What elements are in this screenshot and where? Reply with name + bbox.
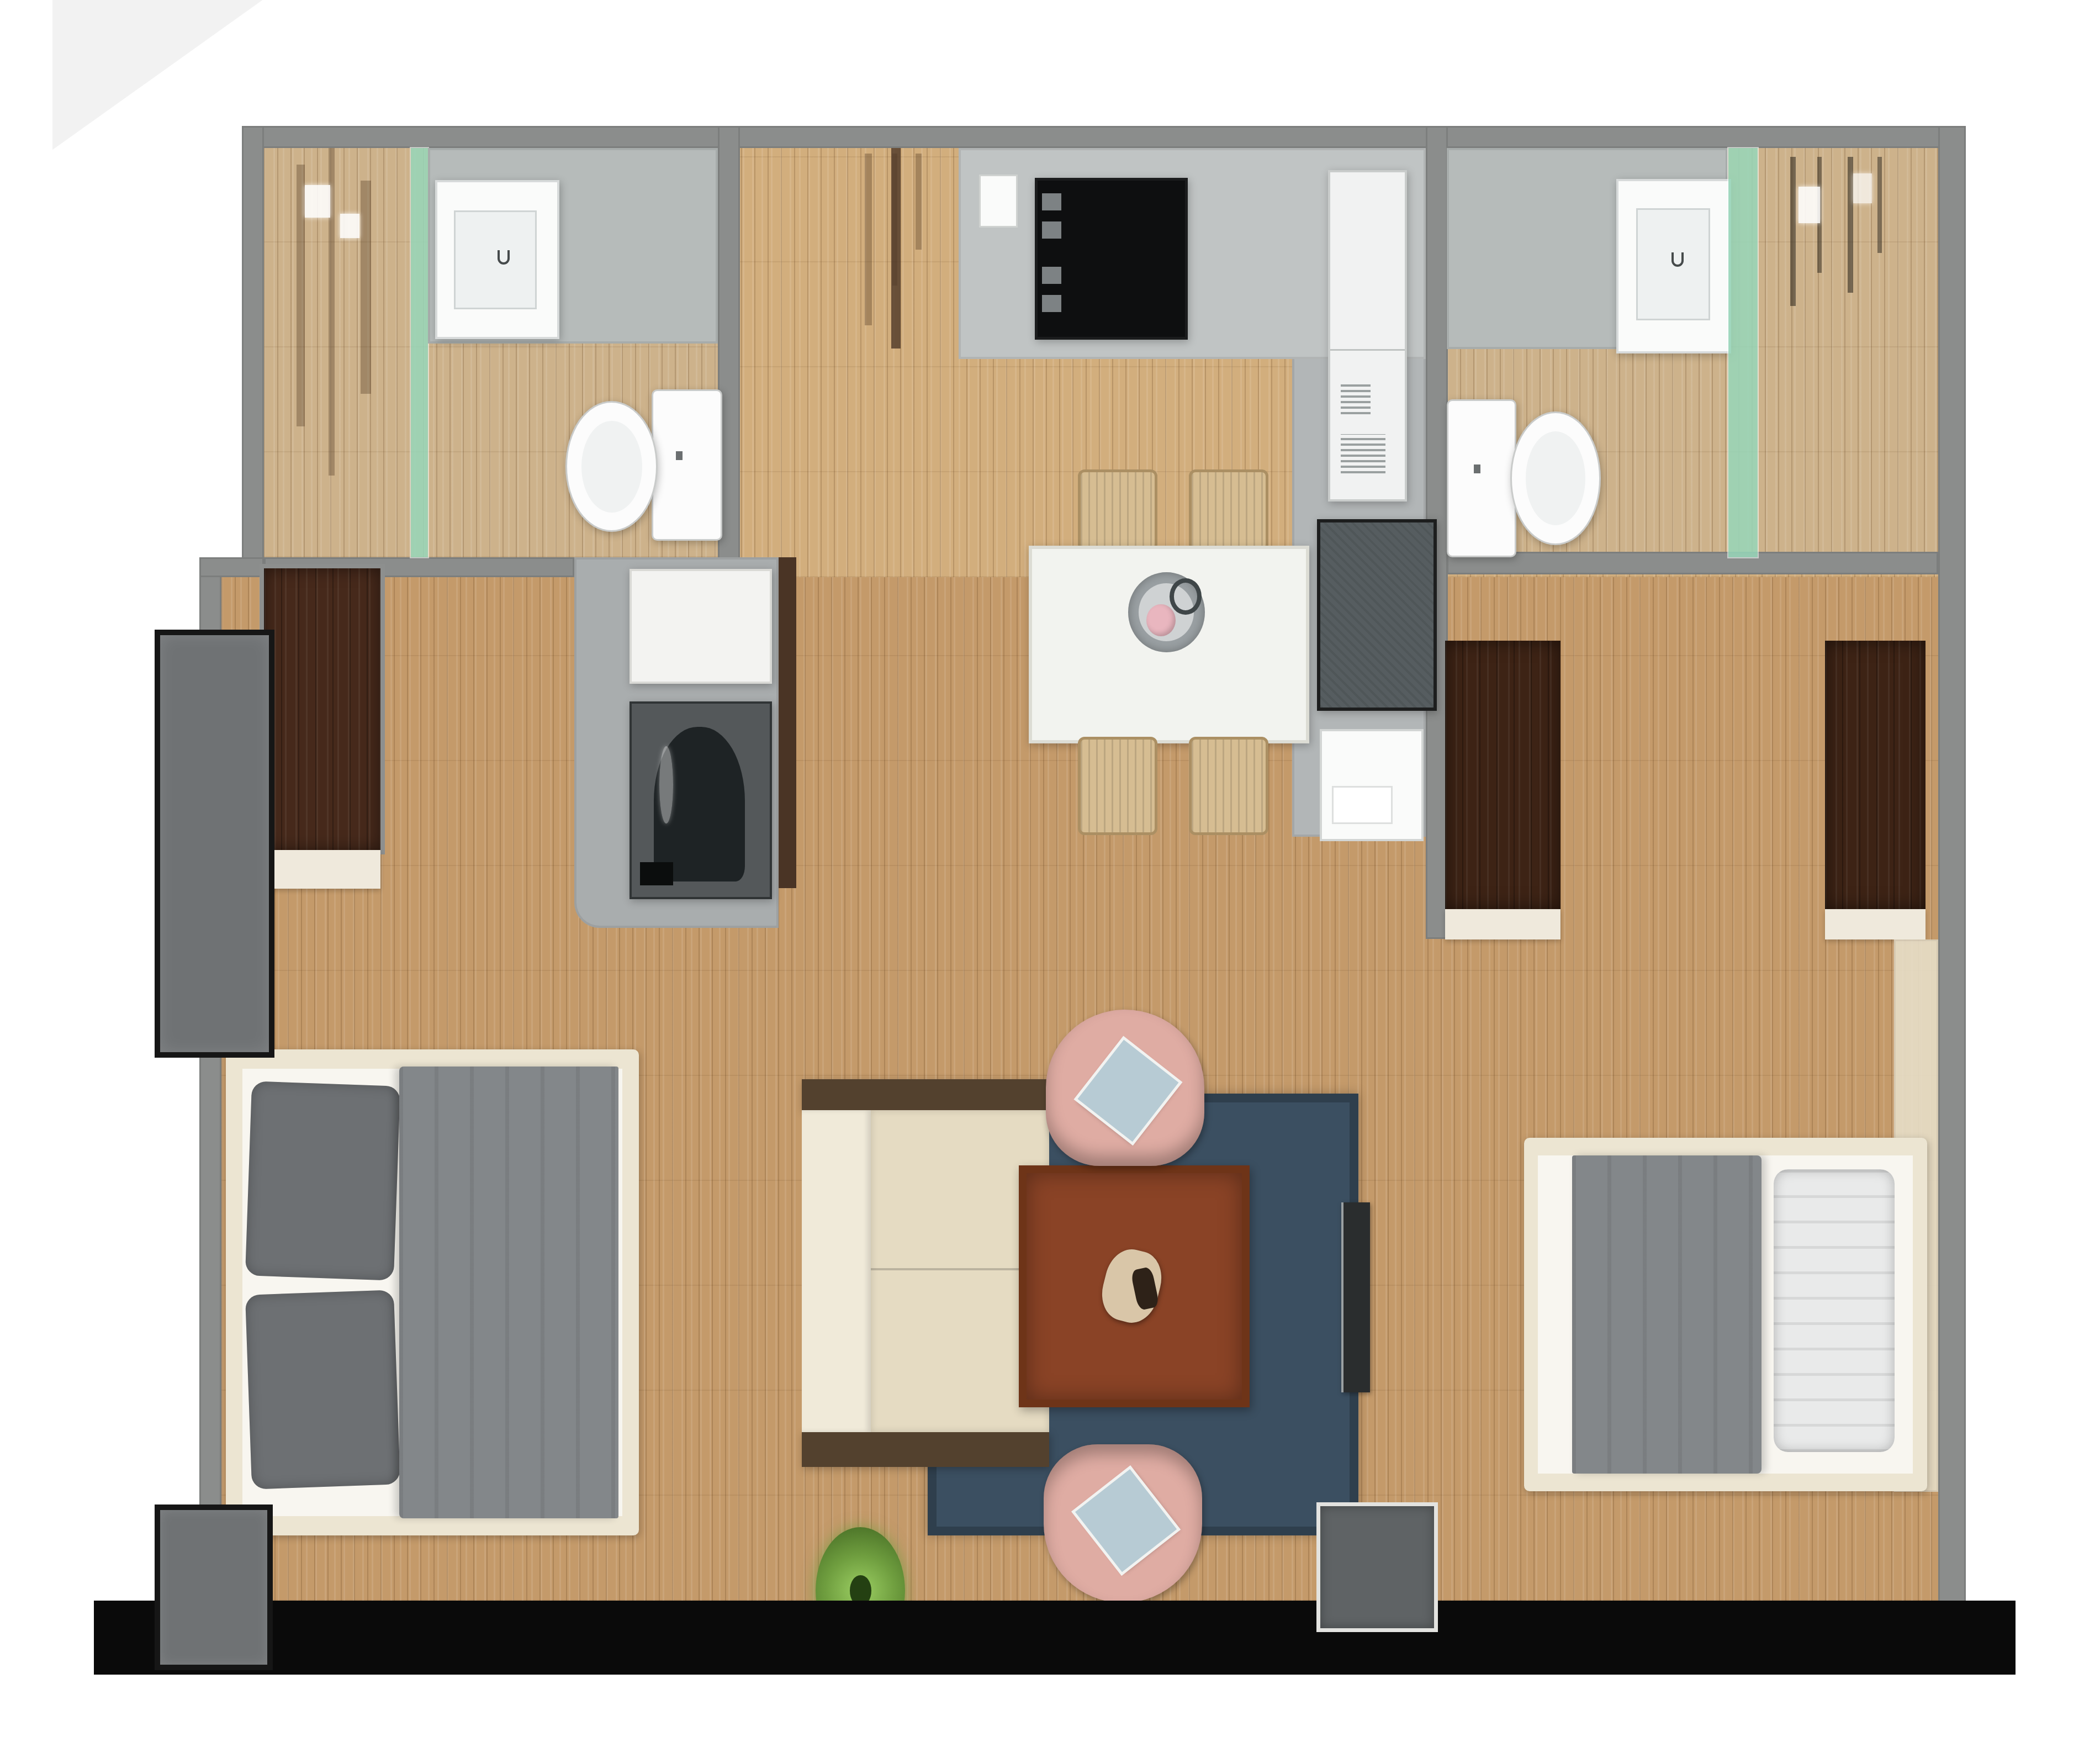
dining-chair bbox=[1078, 737, 1157, 835]
reflection-streak bbox=[916, 154, 922, 250]
vanity-sink-right bbox=[1616, 179, 1731, 353]
table-ornament bbox=[1096, 1244, 1168, 1328]
island-sink bbox=[1320, 729, 1424, 841]
fridge bbox=[1328, 170, 1407, 502]
chandelier-line bbox=[1848, 157, 1853, 293]
fruit-pink bbox=[1146, 604, 1176, 636]
chandelier-line bbox=[1790, 157, 1796, 306]
window-panel-left-large bbox=[155, 630, 274, 1058]
wardrobe-right-b bbox=[1825, 641, 1926, 909]
base-bar bbox=[94, 1601, 2016, 1675]
washing-machine bbox=[630, 701, 772, 899]
chandelier-glint bbox=[1853, 173, 1872, 203]
wall-left-step bbox=[199, 557, 264, 577]
armchair-cushion bbox=[1078, 1040, 1179, 1142]
wardrobe-shelf bbox=[1445, 909, 1561, 939]
bed-left bbox=[226, 1049, 639, 1535]
chandelier-reflection bbox=[1776, 157, 1913, 323]
chandelier-glint bbox=[1799, 187, 1821, 223]
kitchen-sink bbox=[979, 175, 1018, 228]
flush-button-icon bbox=[676, 451, 683, 460]
reflection-glint bbox=[305, 185, 330, 218]
shower-glass-reflection-left bbox=[264, 148, 411, 557]
armchair-bottom bbox=[1044, 1444, 1202, 1603]
entry-door-frame bbox=[891, 148, 901, 349]
floor-plan-render bbox=[0, 0, 2100, 1742]
fridge-vent-icon bbox=[1341, 434, 1385, 473]
washer-glint bbox=[659, 746, 673, 824]
sofa-armrest-top bbox=[802, 1079, 1049, 1110]
reflection-streak bbox=[297, 165, 305, 426]
tv-console bbox=[1341, 1202, 1370, 1392]
toilet-seat bbox=[581, 421, 642, 513]
vanity-sink-left bbox=[435, 180, 559, 339]
sofa-backrest bbox=[802, 1110, 871, 1432]
wardrobe-shelf bbox=[1825, 909, 1926, 939]
faucet-icon bbox=[1671, 252, 1684, 267]
window-panel-left-small bbox=[155, 1505, 273, 1670]
cooktop-knob bbox=[1042, 295, 1061, 312]
wall-top bbox=[242, 126, 1966, 148]
dining-table bbox=[1029, 546, 1309, 743]
cooktop bbox=[1035, 178, 1188, 340]
toilet-seat bbox=[1526, 431, 1585, 525]
fridge-divider bbox=[1330, 349, 1405, 351]
patio-door-panel bbox=[1316, 1502, 1438, 1632]
washer-detergent-tray bbox=[640, 862, 673, 885]
toilet-bowl bbox=[1510, 411, 1601, 545]
coffee-table bbox=[1019, 1165, 1250, 1407]
toilet-left bbox=[565, 389, 719, 537]
toilet-bowl bbox=[565, 401, 658, 532]
sofa-armrest-bottom bbox=[802, 1432, 1049, 1467]
bed-duvet bbox=[1572, 1155, 1762, 1474]
reflection-streak bbox=[361, 181, 371, 393]
corner-shadow bbox=[52, 0, 262, 150]
bowl-handle bbox=[1170, 578, 1202, 614]
armchair-top bbox=[1046, 1010, 1204, 1166]
toilet-tank bbox=[1447, 399, 1516, 557]
washer-top-lid bbox=[630, 569, 772, 684]
armchair-cushion bbox=[1075, 1469, 1177, 1572]
faucet-icon bbox=[498, 250, 510, 265]
wall-bathroom-right-south bbox=[1447, 552, 1938, 574]
wardrobe-right-a bbox=[1445, 641, 1561, 909]
wall-right bbox=[1938, 126, 1966, 1618]
bed-pillow bbox=[1774, 1169, 1895, 1452]
chandelier-line bbox=[1877, 157, 1881, 253]
kitchen-island bbox=[1317, 519, 1437, 711]
fridge-vent-icon bbox=[1341, 382, 1371, 414]
bed-pillow bbox=[245, 1081, 400, 1280]
toilet-tank bbox=[652, 389, 722, 541]
shower-glass-panel-right bbox=[1728, 148, 1758, 557]
bed-duvet bbox=[399, 1067, 618, 1518]
dining-chair bbox=[1189, 737, 1268, 835]
flush-button-icon bbox=[1474, 464, 1480, 473]
toilet-right bbox=[1447, 399, 1598, 554]
cooktop-knob bbox=[1042, 221, 1061, 239]
bed-pillow bbox=[245, 1290, 400, 1489]
dining-chair bbox=[1189, 469, 1268, 551]
sink-basin bbox=[454, 210, 536, 310]
reflection-streak bbox=[865, 154, 872, 326]
cooktop-knob bbox=[1042, 267, 1061, 284]
centerpiece-bowl bbox=[1128, 572, 1205, 652]
closet-shelf bbox=[264, 850, 380, 889]
cooktop-knob bbox=[1042, 193, 1061, 210]
bed-right bbox=[1524, 1138, 1927, 1491]
closet-sliding-door bbox=[264, 568, 380, 850]
wall-left-upper bbox=[242, 126, 264, 577]
sofa bbox=[802, 1079, 1049, 1467]
laundry-door-jamb bbox=[779, 557, 796, 888]
island-basin bbox=[1332, 786, 1393, 824]
dining-chair bbox=[1078, 469, 1157, 551]
shower-glass-panel-left bbox=[411, 148, 428, 557]
reflection-glint bbox=[340, 214, 359, 238]
